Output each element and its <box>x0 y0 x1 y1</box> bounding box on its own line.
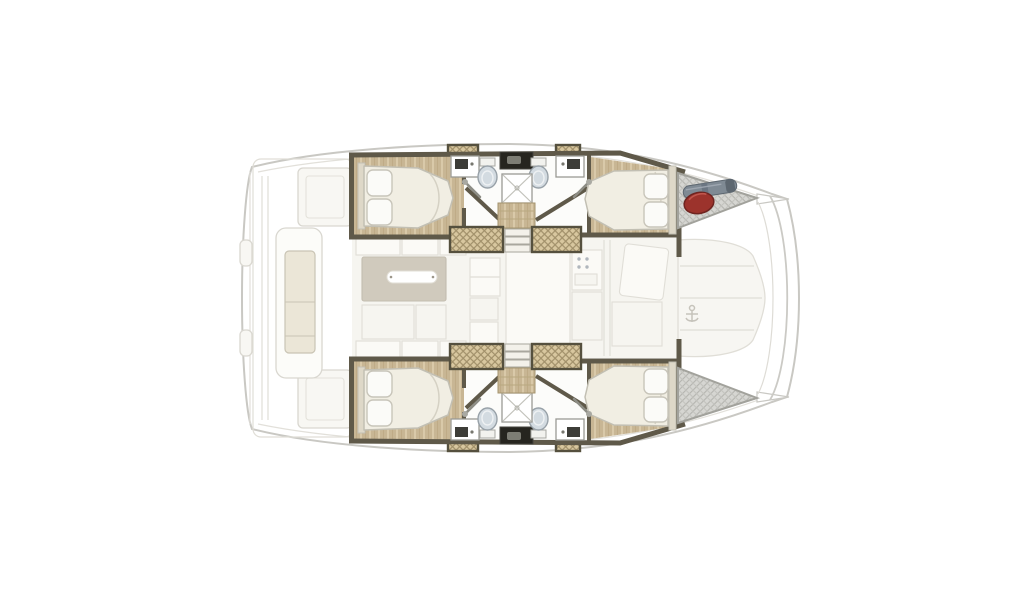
stove-burner-4 <box>585 265 588 268</box>
catamaran-floorplan <box>0 0 1024 600</box>
stove-burner-1 <box>577 257 580 260</box>
swim-step-bottom <box>240 330 252 356</box>
galley-counter-2 <box>572 292 602 340</box>
galley-sink-unit <box>575 274 597 285</box>
stove-burner-3 <box>577 265 580 268</box>
boat <box>240 144 799 452</box>
saloon-bench-lower-1 <box>362 305 414 339</box>
table-centerpiece <box>387 271 437 283</box>
table-centerpiece-dot-1 <box>390 276 393 279</box>
saloon-bench-lower-2 <box>416 305 446 339</box>
stove-burner-2 <box>585 257 588 260</box>
table-centerpiece-dot-2 <box>432 276 435 279</box>
galley-island <box>506 252 570 344</box>
swim-step-top <box>240 240 252 266</box>
saloon-seat-back-1 <box>356 239 400 255</box>
nav-seat <box>619 244 669 301</box>
saloon-galley <box>352 238 678 358</box>
saloon-seat-back-4 <box>356 341 400 357</box>
saloon-seat-back-5 <box>402 341 438 357</box>
galley-cabinet-1 <box>470 298 498 320</box>
nav-seat-group <box>619 244 669 301</box>
deck-panel-mid <box>612 302 662 346</box>
screenshot-canvas <box>0 0 1024 600</box>
foredeck <box>678 239 765 356</box>
saloon-seat-back-2 <box>402 239 438 255</box>
